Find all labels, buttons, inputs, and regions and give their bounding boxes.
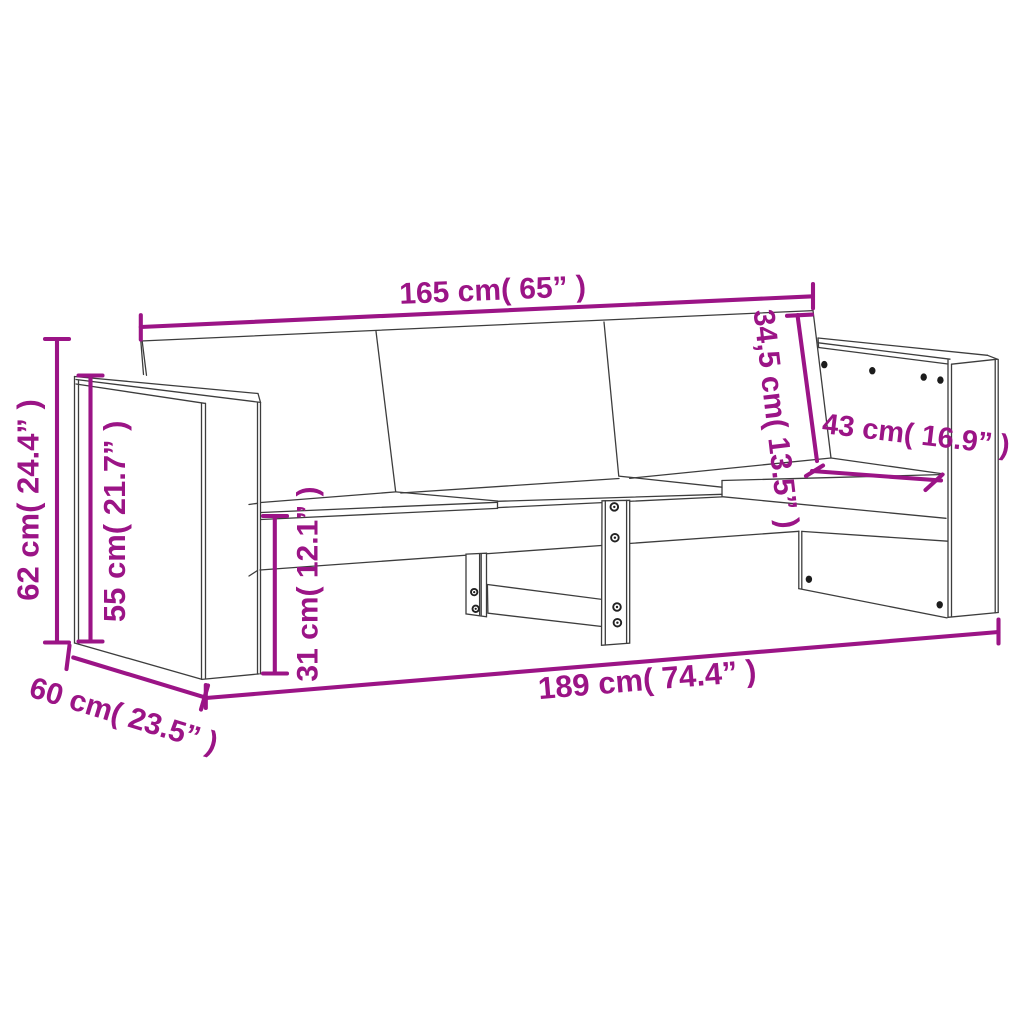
svg-text:31 cm( 12.1” ): 31 cm( 12.1” ) [292,486,325,681]
svg-text:62 cm( 24.4” ): 62 cm( 24.4” ) [11,399,46,601]
svg-text:55 cm( 21.7” ): 55 cm( 21.7” ) [97,420,132,622]
